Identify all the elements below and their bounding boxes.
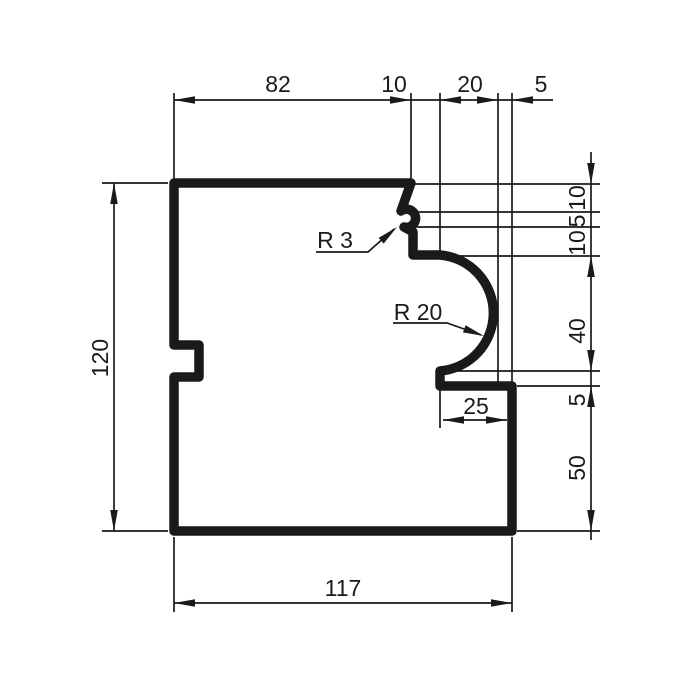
dimension-label-82: 82 bbox=[265, 71, 291, 97]
inner-dimension: 25 bbox=[440, 390, 507, 428]
radius-label-r3: R 3 bbox=[317, 227, 353, 253]
arrowhead bbox=[440, 96, 461, 104]
dimension-label-10-right-b: 10 bbox=[564, 230, 590, 256]
technical-drawing: 82 10 20 5 10 5 10 40 5 50 120 bbox=[0, 0, 686, 686]
arrowhead bbox=[379, 224, 400, 244]
arrowhead bbox=[486, 416, 507, 424]
dimension-label-5-right-a: 5 bbox=[564, 215, 590, 228]
bottom-dimension: 117 bbox=[174, 537, 512, 612]
arrowhead bbox=[477, 96, 498, 104]
dimension-label-50: 50 bbox=[564, 455, 590, 481]
dimension-label-10-right-a: 10 bbox=[564, 185, 590, 211]
arrowhead bbox=[174, 599, 195, 607]
left-dimension: 120 bbox=[87, 183, 168, 531]
drawing-canvas: 82 10 20 5 10 5 10 40 5 50 120 bbox=[0, 0, 686, 686]
arrowhead bbox=[512, 96, 533, 104]
arrowhead bbox=[587, 510, 595, 531]
arrowhead bbox=[174, 96, 195, 104]
arrowhead bbox=[443, 416, 464, 424]
arrowhead bbox=[463, 325, 485, 339]
radius-callout-r3: R 3 bbox=[316, 224, 399, 253]
dimension-label-117: 117 bbox=[325, 575, 362, 601]
arrowhead bbox=[587, 350, 595, 371]
radius-callout-r20: R 20 bbox=[393, 299, 485, 340]
dimension-label-20: 20 bbox=[457, 71, 483, 97]
arrowhead bbox=[587, 163, 595, 184]
dimension-label-25: 25 bbox=[463, 393, 489, 419]
arrowhead bbox=[390, 96, 411, 104]
dimension-label-5-top: 5 bbox=[535, 71, 548, 97]
dimension-label-10-top: 10 bbox=[381, 71, 407, 97]
arrowhead bbox=[491, 599, 512, 607]
dimension-label-120: 120 bbox=[87, 339, 113, 377]
arrowhead bbox=[110, 183, 118, 204]
radius-label-r20: R 20 bbox=[394, 299, 443, 325]
arrowhead bbox=[587, 256, 595, 277]
arrowhead bbox=[110, 510, 118, 531]
dimension-label-5-right-b: 5 bbox=[564, 394, 590, 407]
dimension-label-40: 40 bbox=[564, 318, 590, 344]
